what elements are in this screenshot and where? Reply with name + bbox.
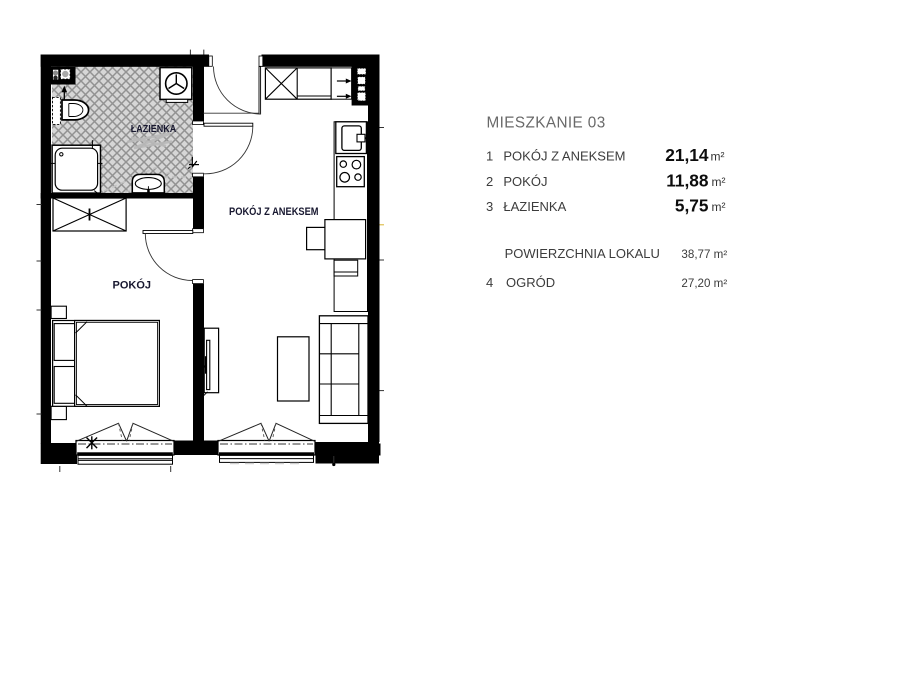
svg-text:m²: m² [711,150,725,164]
svg-text:4: 4 [486,275,493,290]
svg-text:3: 3 [486,199,493,214]
svg-text:POKÓJ: POKÓJ [503,174,547,189]
svg-text:5,75: 5,75 [675,195,709,215]
svg-text:m²: m² [712,175,726,189]
svg-text:2: 2 [486,174,493,189]
svg-text:POKÓJ Z ANEKSEM: POKÓJ Z ANEKSEM [503,149,625,164]
svg-text:m²: m² [712,200,726,214]
svg-text:1: 1 [486,149,493,164]
svg-text:POWIERZCHNIA LOKALU: POWIERZCHNIA LOKALU [505,246,660,261]
svg-text:POKÓJ: POKÓJ [113,279,152,292]
svg-text:38,77 m²: 38,77 m² [681,248,727,261]
svg-text:POKÓJ Z ANEKSEM: POKÓJ Z ANEKSEM [229,205,319,218]
svg-text:11,88: 11,88 [666,171,709,191]
svg-text:27,20 m²: 27,20 m² [681,277,727,290]
svg-text:MIESZKANIE 03: MIESZKANIE 03 [487,115,606,132]
svg-text:ŁAZIENKA: ŁAZIENKA [503,199,566,214]
svg-text:21,14: 21,14 [665,145,709,165]
svg-text:ŁAZIENKA: ŁAZIENKA [131,124,177,135]
svg-text:OGRÓD: OGRÓD [506,275,555,290]
